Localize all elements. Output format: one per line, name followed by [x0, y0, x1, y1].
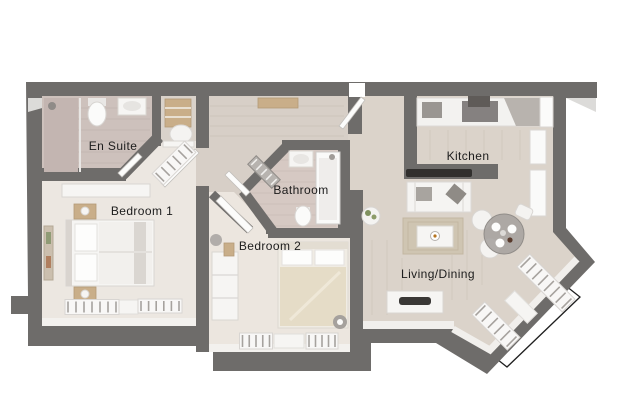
fridge — [540, 97, 553, 127]
room-label-en-suite: En Suite — [89, 139, 138, 153]
room-label-bedroom-2: Bedroom 2 — [239, 239, 301, 253]
headboard — [66, 220, 72, 286]
floor-plan: En Suite Bedroom 1 Bathroom Bedroom 2 Ki… — [0, 0, 625, 417]
bath-tap-icon — [329, 154, 335, 160]
lamp-icon — [81, 207, 89, 215]
cooker-hood — [468, 96, 490, 107]
cushion — [416, 187, 432, 201]
kitchen-window — [530, 130, 546, 164]
shower — [44, 98, 78, 172]
room-label-kitchen: Kitchen — [447, 149, 490, 163]
picture-frame — [224, 243, 234, 256]
pillow — [75, 254, 97, 281]
room-label-bathroom: Bathroom — [273, 183, 328, 197]
hall-shelf — [258, 98, 298, 108]
pillow — [75, 224, 97, 251]
room-label-living-dining: Living/Dining — [401, 267, 475, 281]
plate — [508, 225, 517, 234]
lamp-icon — [81, 290, 89, 298]
toilet — [88, 102, 106, 126]
wardrobe — [62, 184, 150, 197]
skirting-bedroom-1 — [42, 318, 196, 326]
pillow — [315, 250, 344, 265]
room-label-bedroom-1: Bedroom 1 — [111, 204, 173, 218]
laundry-basket — [170, 125, 192, 143]
small-appliance — [422, 102, 442, 118]
tv — [399, 297, 431, 305]
front-door-opening — [349, 83, 365, 97]
tv — [406, 169, 472, 177]
plant-icon — [365, 210, 371, 216]
plate — [492, 223, 501, 232]
roof-edge-right — [566, 98, 596, 112]
shelf-unit — [165, 99, 191, 127]
mug — [507, 237, 512, 242]
side-table — [362, 207, 380, 225]
lamp-icon — [210, 234, 222, 246]
plate — [496, 239, 505, 248]
shower-head-icon — [48, 102, 56, 110]
chest-of-drawers — [212, 252, 238, 320]
toilet — [295, 206, 311, 226]
floor-plan-canvas: En Suite Bedroom 1 Bathroom Bedroom 2 Ki… — [0, 0, 625, 417]
skirting-living — [362, 321, 454, 329]
